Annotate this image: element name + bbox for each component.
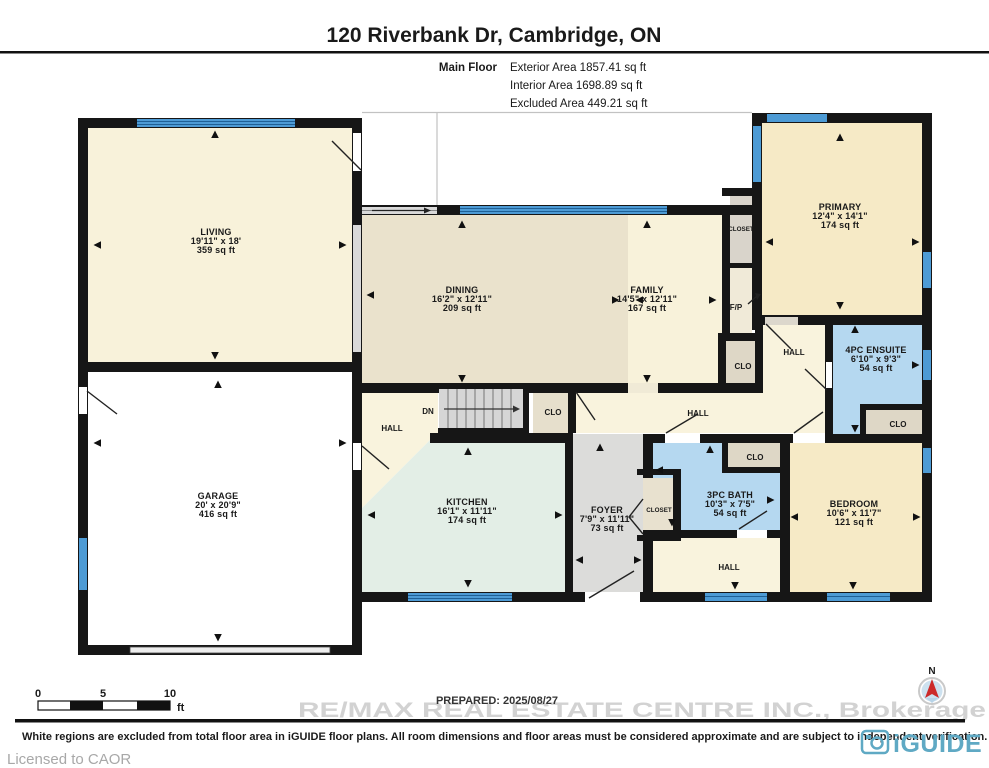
hall-bottom-floor xyxy=(653,538,780,592)
compass: N xyxy=(919,666,945,704)
stairs-dn-label: DN xyxy=(422,407,434,416)
hall-family-floor xyxy=(763,325,825,393)
svg-text:359 sq ft: 359 sq ft xyxy=(197,245,235,255)
excluded-area: Excluded Area 449.21 sq ft xyxy=(510,98,648,110)
footer-divider xyxy=(15,719,965,723)
floor-label: Main Floor xyxy=(439,62,498,74)
scale-5: 5 xyxy=(100,688,106,700)
svg-text:121 sq ft: 121 sq ft xyxy=(835,517,873,527)
garage-door xyxy=(130,647,330,653)
stairs-closet-label: CLO xyxy=(545,408,562,417)
scale-10: 10 xyxy=(164,688,176,700)
svg-text:209 sq ft: 209 sq ft xyxy=(443,303,481,313)
interior-area: Interior Area 1698.89 sq ft xyxy=(510,80,643,92)
hall-left-label: HALL xyxy=(381,424,402,433)
dining-floor xyxy=(362,215,628,383)
brokerage-watermark: RE/MAX REAL ESTATE CENTRE INC., Brokerag… xyxy=(298,699,986,722)
page-title: 120 Riverbank Dr, Cambridge, ON xyxy=(327,24,662,47)
scale-0: 0 xyxy=(35,688,41,700)
svg-text:174 sq ft: 174 sq ft xyxy=(821,220,859,230)
garage-label: GARAGE 20' x 20'9" 416 sq ft xyxy=(195,491,241,519)
foyer-closet-label: CLOSET xyxy=(646,507,672,514)
clo1-label: CLO xyxy=(735,362,752,371)
deck-outline xyxy=(362,113,752,206)
floor-plan-page: 120 Riverbank Dr, Cambridge, ON Main Flo… xyxy=(0,0,989,768)
hall-family-label: HALL xyxy=(783,348,804,357)
svg-text:73 sq ft: 73 sq ft xyxy=(590,523,623,533)
floor-plan-canvas: 120 Riverbank Dr, Cambridge, ON Main Flo… xyxy=(0,0,989,768)
svg-text:54 sq ft: 54 sq ft xyxy=(859,363,892,373)
svg-text:174 sq ft: 174 sq ft xyxy=(448,515,486,525)
prepared-date: PREPARED: 2025/08/27 xyxy=(436,695,558,707)
fireplace-label: F/P xyxy=(730,303,743,312)
fireplace-nook-floor xyxy=(730,268,752,333)
licensed-text: Licensed to CAOR xyxy=(7,751,131,768)
scale-bar: 0 5 10 ft xyxy=(35,688,185,714)
svg-text:167 sq ft: 167 sq ft xyxy=(628,303,666,313)
svg-text:54 sq ft: 54 sq ft xyxy=(713,508,746,518)
sliding-door xyxy=(362,207,437,214)
staircase xyxy=(439,389,523,428)
scale-unit: ft xyxy=(177,702,185,714)
hall-bottom-label: HALL xyxy=(718,563,739,572)
iguide-wordmark: iGUIDE xyxy=(893,730,982,758)
svg-text:416 sq ft: 416 sq ft xyxy=(199,509,237,519)
hall-main-label: HALL xyxy=(687,409,708,418)
compass-north-label: N xyxy=(928,666,935,677)
header: 120 Riverbank Dr, Cambridge, ON Main Flo… xyxy=(0,24,989,110)
header-divider xyxy=(0,51,989,54)
disclaimer-text: White regions are excluded from total fl… xyxy=(22,731,987,743)
exterior-area: Exterior Area 1857.41 sq ft xyxy=(510,62,647,74)
primary-closet-label: CLOSET xyxy=(728,226,754,233)
clo2-label: CLO xyxy=(890,420,907,429)
bath-closet-label: CLO xyxy=(747,453,764,462)
